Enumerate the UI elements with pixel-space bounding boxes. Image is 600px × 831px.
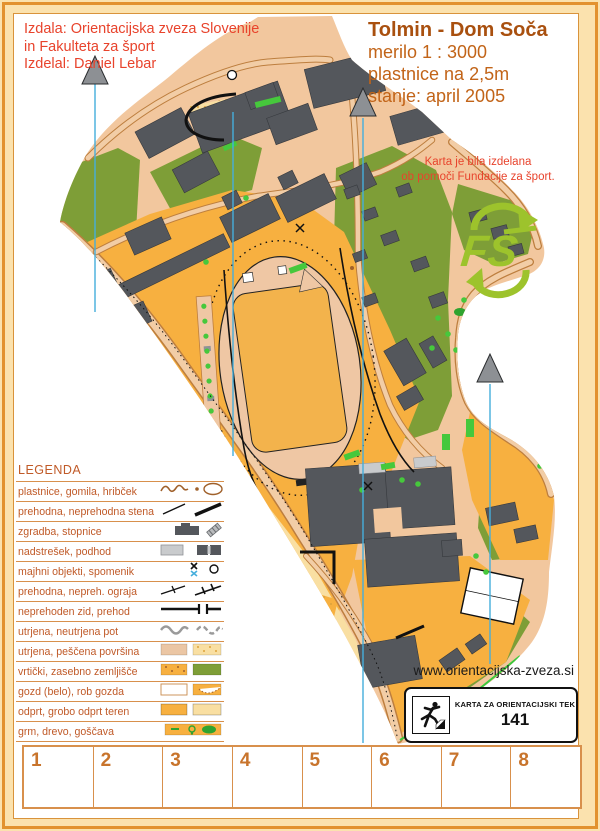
svg-text:FS: FS — [459, 227, 520, 276]
legend-item: odprt, grobo odprt teren — [16, 701, 224, 721]
funding-line-2: ob pomoči Fundacije za šport. — [382, 170, 574, 185]
legend-item: grm, drevo, goščava — [16, 721, 224, 742]
punch-cell: 6 — [372, 747, 442, 807]
orienteering-runner-icon — [412, 696, 450, 734]
legend-item: vrtički, zasebno zemljišče — [16, 661, 224, 681]
legend-item-label: nadstrešek, podhod — [18, 546, 111, 558]
legend-item-label: majhni objekti, spomenik — [18, 566, 134, 578]
bush-tree-thicket-swatch — [159, 721, 223, 743]
map-credits: Izdala: Orientacijska zveza Slovenije in… — [24, 21, 259, 74]
legend-item: nadstrešek, podhod — [16, 541, 224, 561]
small-object-monument-symbol — [159, 561, 223, 583]
punch-cell: 2 — [94, 747, 164, 807]
legend-item: majhni objekti, spomenik — [16, 561, 224, 581]
legend-item: utrjena, peščena površina — [16, 641, 224, 661]
legend-item-label: grm, drevo, goščava — [18, 726, 114, 738]
legend-item-label: prehodna, nepreh. ograja — [18, 586, 137, 598]
legend-heading: LEGENDA — [16, 461, 224, 481]
legend-item-label: odprt, grobo odprt teren — [18, 706, 129, 718]
legend-item-label: vrtički, zasebno zemljišče — [18, 666, 138, 678]
wall-symbol — [159, 501, 223, 523]
fs-logo-icon: FS — [444, 186, 556, 314]
contour-knoll-hill-symbol — [159, 481, 223, 503]
card-texts: KARTA ZA ORIENTACIJSKI TEK 141 — [454, 700, 576, 730]
legend-item: zgradba, stopnice — [16, 521, 224, 541]
control-punch-row: 12345678 — [22, 745, 582, 809]
legend-item: prehodna, nepreh. ograja — [16, 581, 224, 601]
card-title: KARTA ZA ORIENTACIJSKI TEK — [454, 700, 576, 709]
punch-cell: 3 — [163, 747, 233, 807]
punch-cell: 1 — [24, 747, 94, 807]
fs-foundation-logo: FS — [444, 186, 556, 319]
fence-symbol — [159, 581, 223, 603]
forest-edge-swatch — [159, 681, 223, 703]
credits-line-3: Izdelal: Daniel Lebar — [24, 56, 259, 74]
map-scale: merilo 1 : 3000 — [368, 42, 574, 64]
building-stairs-symbol — [159, 521, 223, 543]
website-text: www.orientacijska-zveza.si — [400, 663, 574, 678]
legend-items: plastnice, gomila, hribčekprehodna, nepr… — [16, 481, 224, 742]
legend-item-label: prehodna, neprehodna stena — [18, 506, 154, 518]
funding-line-1: Karta je bila izdelana — [382, 155, 574, 170]
legend: LEGENDA plastnice, gomila, hribčekprehod… — [16, 461, 224, 742]
punch-cell: 7 — [442, 747, 512, 807]
legend-item-label: gozd (belo), rob gozda — [18, 686, 124, 698]
allotment-private-swatch — [159, 661, 223, 683]
legend-item: plastnice, gomila, hribček — [16, 481, 224, 501]
funding-note: Karta je bila izdelana ob pomoči Fundaci… — [382, 155, 574, 185]
canopy-passage-symbol — [159, 541, 223, 563]
map-contour-interval: plastnice na 2,5m — [368, 64, 574, 86]
legend-item: neprehoden zid, prehod — [16, 601, 224, 621]
impassable-wall-gap-symbol — [159, 601, 223, 623]
orienteering-card-badge: KARTA ZA ORIENTACIJSKI TEK 141 — [404, 687, 578, 743]
legend-item-label: utrjena, neutrjena pot — [18, 626, 118, 638]
legend-item: prehodna, neprehodna stena — [16, 501, 224, 521]
punch-cell: 5 — [303, 747, 373, 807]
credits-line-2: in Fakulteta za šport — [24, 39, 259, 57]
legend-item-label: plastnice, gomila, hribček — [18, 486, 137, 498]
legend-item-label: zgradba, stopnice — [18, 526, 102, 538]
legend-item-label: utrjena, peščena površina — [18, 646, 139, 658]
path-symbol — [159, 621, 223, 643]
title-block: Tolmin - Dom Soča merilo 1 : 3000 plastn… — [368, 18, 574, 108]
credits-line-1: Izdala: Orientacijska zveza Slovenije — [24, 21, 259, 39]
card-number: 141 — [454, 710, 576, 730]
legend-item: gozd (belo), rob gozda — [16, 681, 224, 701]
paved-sand-swatch — [159, 641, 223, 663]
punch-cell: 8 — [511, 747, 580, 807]
open-terrain-swatch — [159, 701, 223, 723]
legend-item: utrjena, neutrjena pot — [16, 621, 224, 641]
punch-cell: 4 — [233, 747, 303, 807]
legend-item-label: neprehoden zid, prehod — [18, 606, 130, 618]
map-status-date: stanje: april 2005 — [368, 86, 574, 108]
map-title: Tolmin - Dom Soča — [368, 18, 574, 42]
